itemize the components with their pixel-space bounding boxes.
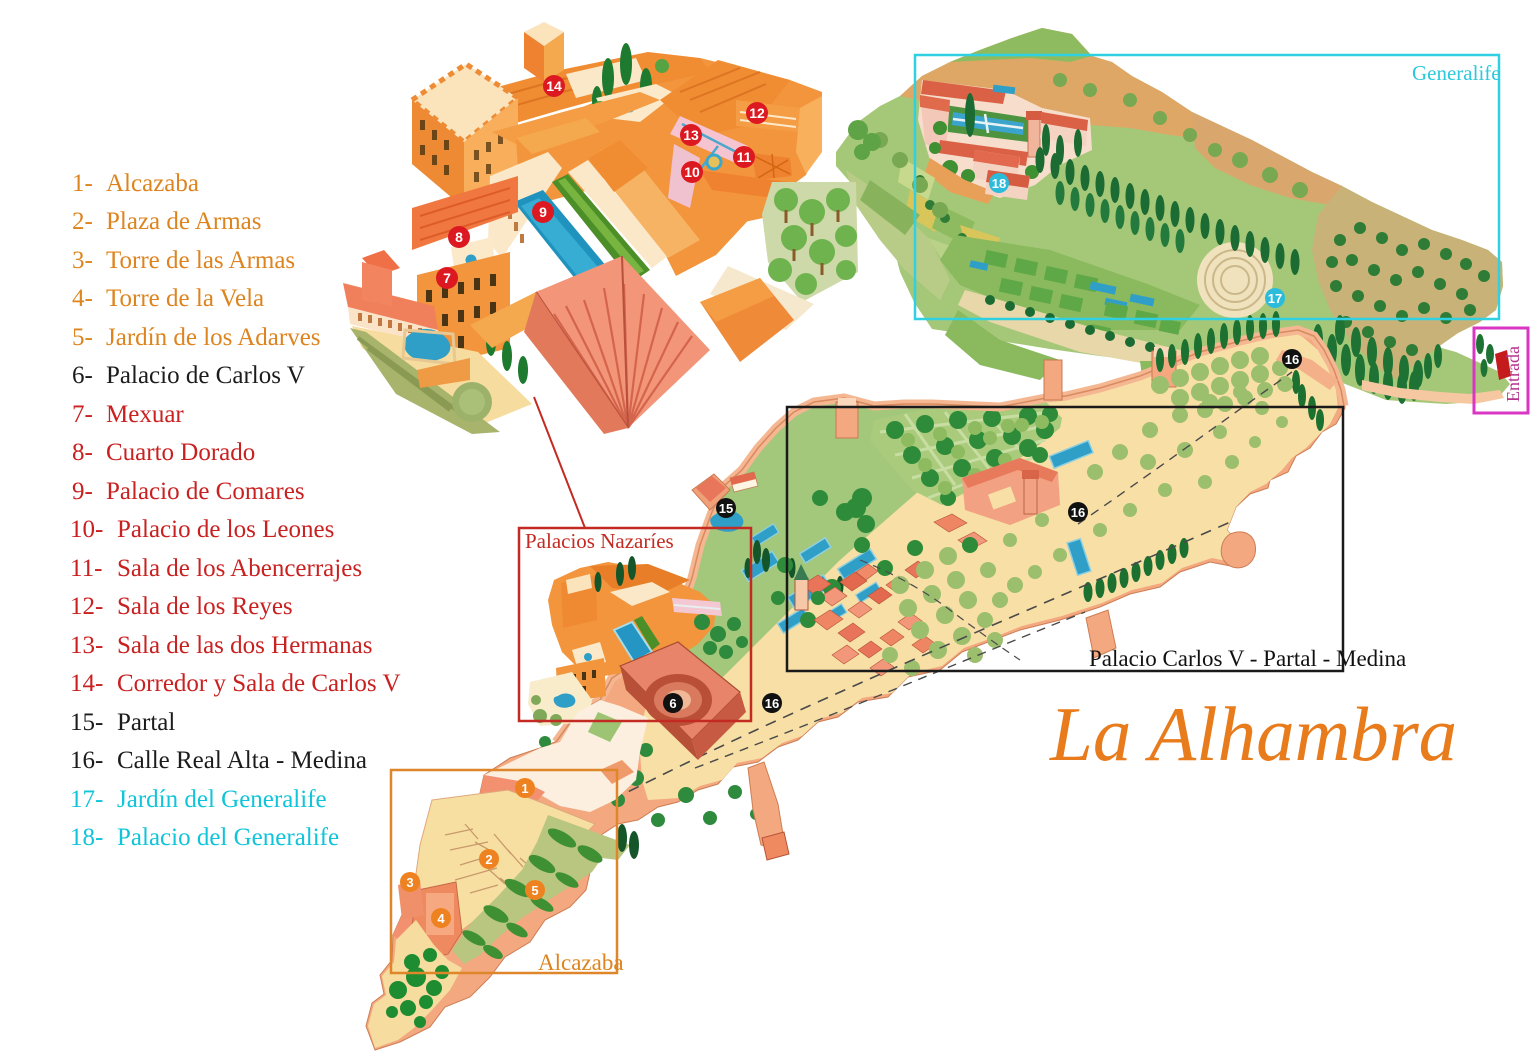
svg-text:Plaza de Armas: Plaza de Armas xyxy=(106,208,262,235)
svg-text:Alcazaba: Alcazaba xyxy=(106,170,199,197)
svg-text:14-: 14- xyxy=(70,670,103,697)
svg-text:Palacios Nazaríes: Palacios Nazaríes xyxy=(525,529,674,553)
svg-text:Generalife: Generalife xyxy=(1412,61,1501,85)
svg-text:Jardín de los Adarves: Jardín de los Adarves xyxy=(106,324,321,351)
svg-text:8: 8 xyxy=(455,229,463,245)
svg-text:11-: 11- xyxy=(70,555,102,582)
svg-text:17-: 17- xyxy=(70,786,103,813)
svg-text:Corredor y Sala de Carlos V: Corredor y Sala de Carlos V xyxy=(117,670,401,697)
svg-text:14: 14 xyxy=(546,78,562,94)
svg-text:10: 10 xyxy=(684,164,700,180)
svg-text:8-: 8- xyxy=(72,439,93,466)
svg-text:18: 18 xyxy=(992,176,1006,191)
svg-text:16: 16 xyxy=(1071,505,1085,520)
svg-text:6-: 6- xyxy=(72,362,93,389)
svg-text:3: 3 xyxy=(406,875,413,890)
svg-text:3-: 3- xyxy=(72,247,93,274)
svg-text:Palacio Carlos V - Partal - Me: Palacio Carlos V - Partal - Medina xyxy=(1089,646,1406,671)
svg-text:Mexuar: Mexuar xyxy=(106,401,184,428)
svg-text:Sala de los Reyes: Sala de los Reyes xyxy=(117,593,293,620)
svg-text:1-: 1- xyxy=(72,170,93,197)
svg-text:10-: 10- xyxy=(70,516,103,543)
svg-text:Palacio de Comares: Palacio de Comares xyxy=(106,478,305,505)
svg-text:12: 12 xyxy=(749,105,765,121)
svg-text:13-: 13- xyxy=(70,632,103,659)
svg-text:Sala de los Abencerrajes: Sala de los Abencerrajes xyxy=(117,555,362,582)
svg-text:Palacio de Carlos V: Palacio de Carlos V xyxy=(106,362,305,389)
svg-text:Alcazaba: Alcazaba xyxy=(538,950,624,975)
svg-text:Palacio de los Leones: Palacio de los Leones xyxy=(117,516,334,543)
svg-text:7-: 7- xyxy=(72,401,93,428)
svg-text:4: 4 xyxy=(437,911,445,926)
svg-text:Torre de las Armas: Torre de las Armas xyxy=(106,247,295,274)
svg-text:9-: 9- xyxy=(72,478,93,505)
svg-text:13: 13 xyxy=(683,127,699,143)
svg-text:Palacio del Generalife: Palacio del Generalife xyxy=(117,824,339,851)
svg-text:5: 5 xyxy=(531,883,538,898)
svg-text:5-: 5- xyxy=(72,324,93,351)
svg-text:7: 7 xyxy=(443,270,451,286)
svg-text:Cuarto Dorado: Cuarto Dorado xyxy=(106,439,255,466)
svg-text:Partal: Partal xyxy=(117,709,175,736)
svg-text:11: 11 xyxy=(737,149,752,165)
svg-text:9: 9 xyxy=(539,204,547,220)
svg-text:16: 16 xyxy=(765,696,779,711)
svg-text:Torre de la Vela: Torre de la Vela xyxy=(106,285,264,312)
svg-text:Jardín del Generalife: Jardín del Generalife xyxy=(117,786,327,813)
svg-text:17: 17 xyxy=(1268,291,1282,306)
svg-text:Sala de las dos Hermanas: Sala de las dos Hermanas xyxy=(117,632,372,659)
svg-text:1: 1 xyxy=(521,781,528,796)
svg-text:6: 6 xyxy=(669,696,676,711)
svg-text:Calle Real Alta - Medina: Calle Real Alta - Medina xyxy=(117,747,367,774)
svg-text:12-: 12- xyxy=(70,593,103,620)
svg-text:16: 16 xyxy=(1285,352,1299,367)
svg-text:15-: 15- xyxy=(70,709,103,736)
svg-text:18-: 18- xyxy=(70,824,103,851)
svg-text:2: 2 xyxy=(485,852,492,867)
svg-text:16-: 16- xyxy=(70,747,103,774)
svg-text:4-: 4- xyxy=(72,285,93,312)
svg-text:La Alhambra: La Alhambra xyxy=(1049,691,1457,777)
svg-text:2-: 2- xyxy=(72,208,93,235)
svg-text:Entrada: Entrada xyxy=(1503,346,1523,402)
svg-text:15: 15 xyxy=(719,501,733,516)
